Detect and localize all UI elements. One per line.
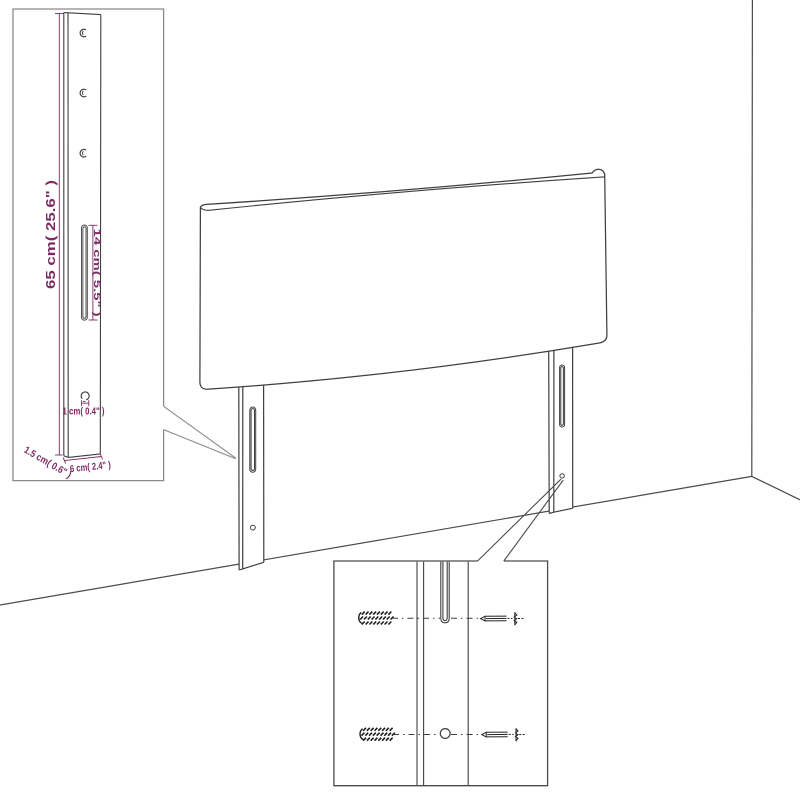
svg-text:1 cm( 0.4" ): 1 cm( 0.4" ) xyxy=(63,407,105,418)
svg-text:65 cm( 25.6" ): 65 cm( 25.6" ) xyxy=(43,180,58,289)
svg-text:14 cm( 5.5" ): 14 cm( 5.5" ) xyxy=(91,229,102,317)
